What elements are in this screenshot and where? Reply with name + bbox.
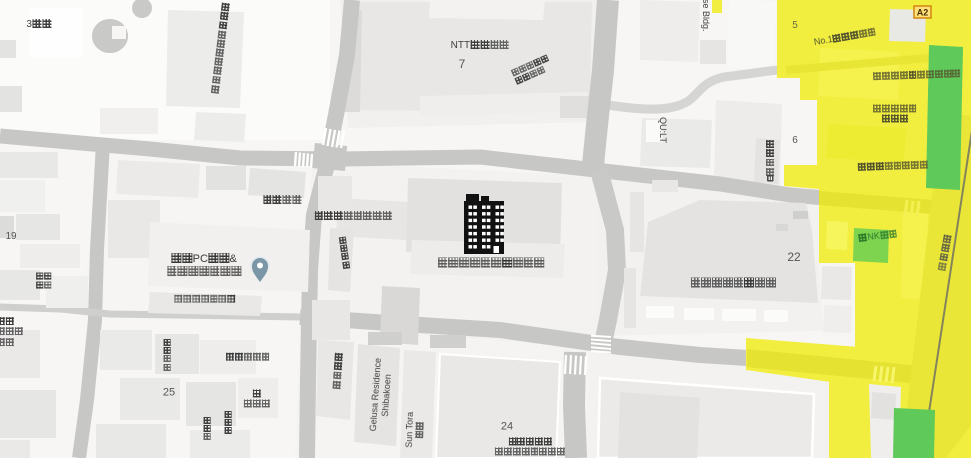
svg-text:A2: A2 <box>917 8 929 18</box>
